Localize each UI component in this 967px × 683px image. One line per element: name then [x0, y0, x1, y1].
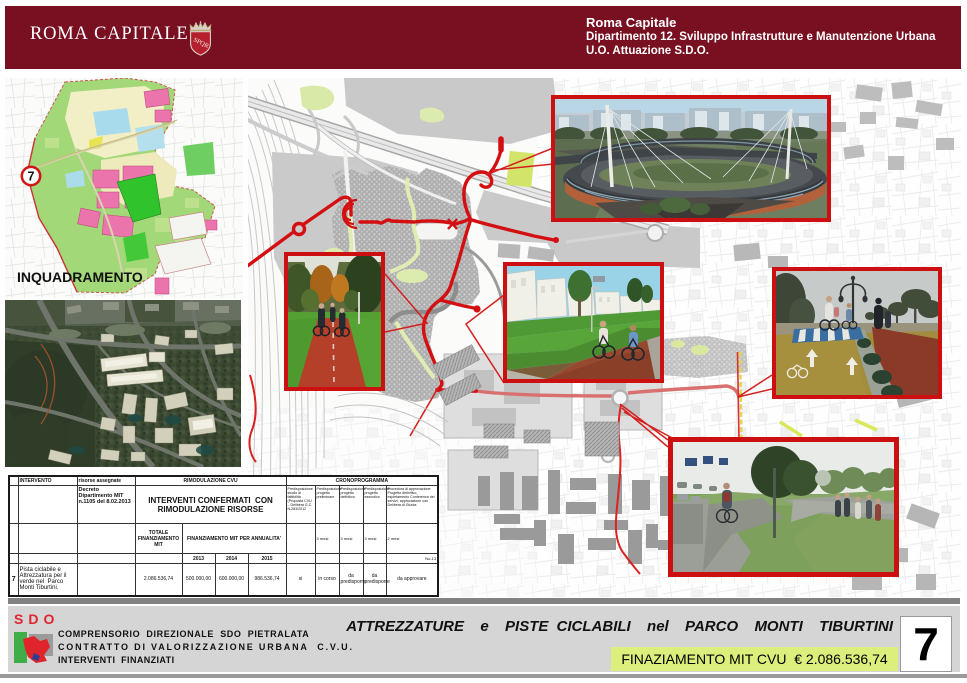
- svg-text:7: 7: [28, 170, 35, 184]
